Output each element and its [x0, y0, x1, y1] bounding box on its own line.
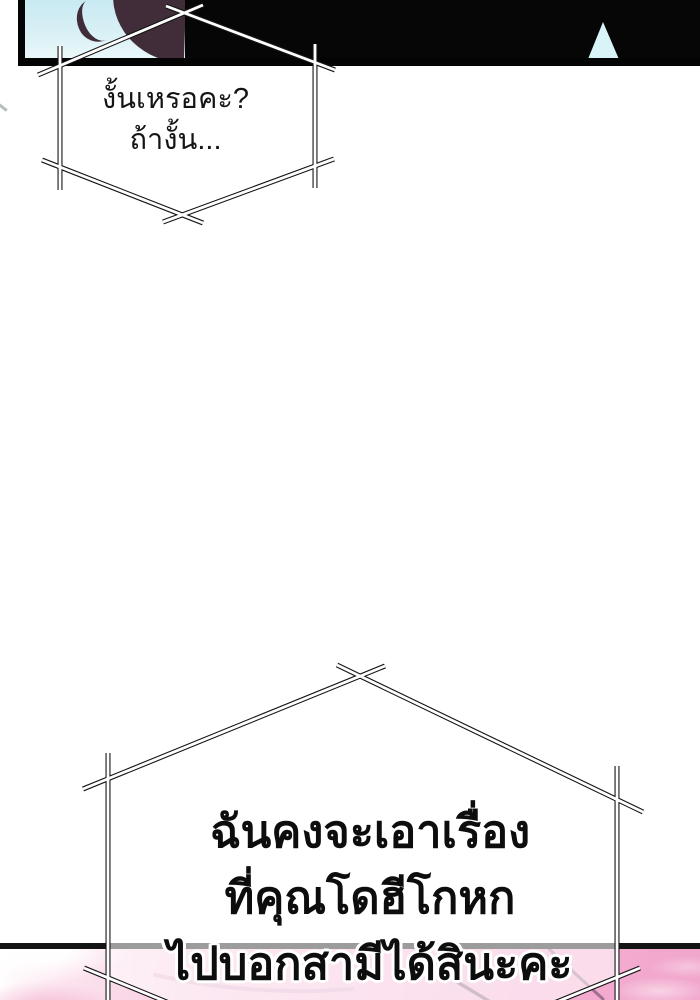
speech-line: ที่คุณโดฮีโกหก: [105, 865, 635, 931]
speech-line: ฉันคงจะเอาเรื่อง: [105, 799, 635, 865]
comic-page: งั้นเหรอคะ? ถ้างั้น... ฉันคงจะเอาเรื่อง …: [0, 0, 700, 1000]
speech-line: ถ้างั้น...: [58, 120, 293, 161]
speech-line: ไปบอกสามีได้สินะคะ: [105, 931, 635, 997]
speech-bubble-top: งั้นเหรอคะ? ถ้างั้น...: [58, 79, 293, 161]
speech-bubble-bottom: ฉันคงจะเอาเรื่อง ที่คุณโดฮีโกหก ไปบอกสาม…: [105, 799, 635, 997]
speech-line: งั้นเหรอคะ?: [58, 79, 293, 120]
